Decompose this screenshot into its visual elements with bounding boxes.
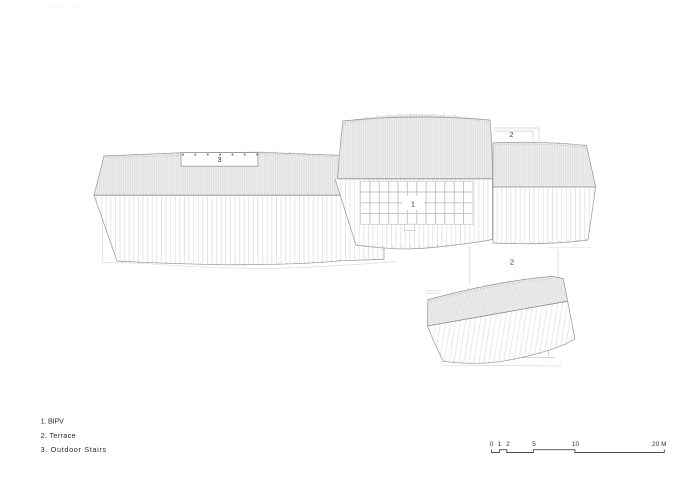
- svg-text:3: 3: [217, 155, 221, 164]
- svg-text:0: 0: [490, 441, 494, 448]
- svg-text:20 M: 20 M: [652, 441, 666, 448]
- svg-text:1. BIPV: 1. BIPV: [41, 416, 64, 425]
- svg-text:2: 2: [506, 441, 510, 448]
- svg-text:1: 1: [498, 441, 502, 448]
- svg-text:1: 1: [411, 200, 415, 209]
- svg-text:2: 2: [510, 258, 514, 267]
- svg-text:10: 10: [572, 441, 580, 448]
- svg-text:3. Outdoor Stairs: 3. Outdoor Stairs: [41, 445, 107, 454]
- svg-text:2. Terrace: 2. Terrace: [41, 431, 76, 440]
- svg-text:2: 2: [509, 130, 513, 139]
- svg-text:5: 5: [532, 441, 536, 448]
